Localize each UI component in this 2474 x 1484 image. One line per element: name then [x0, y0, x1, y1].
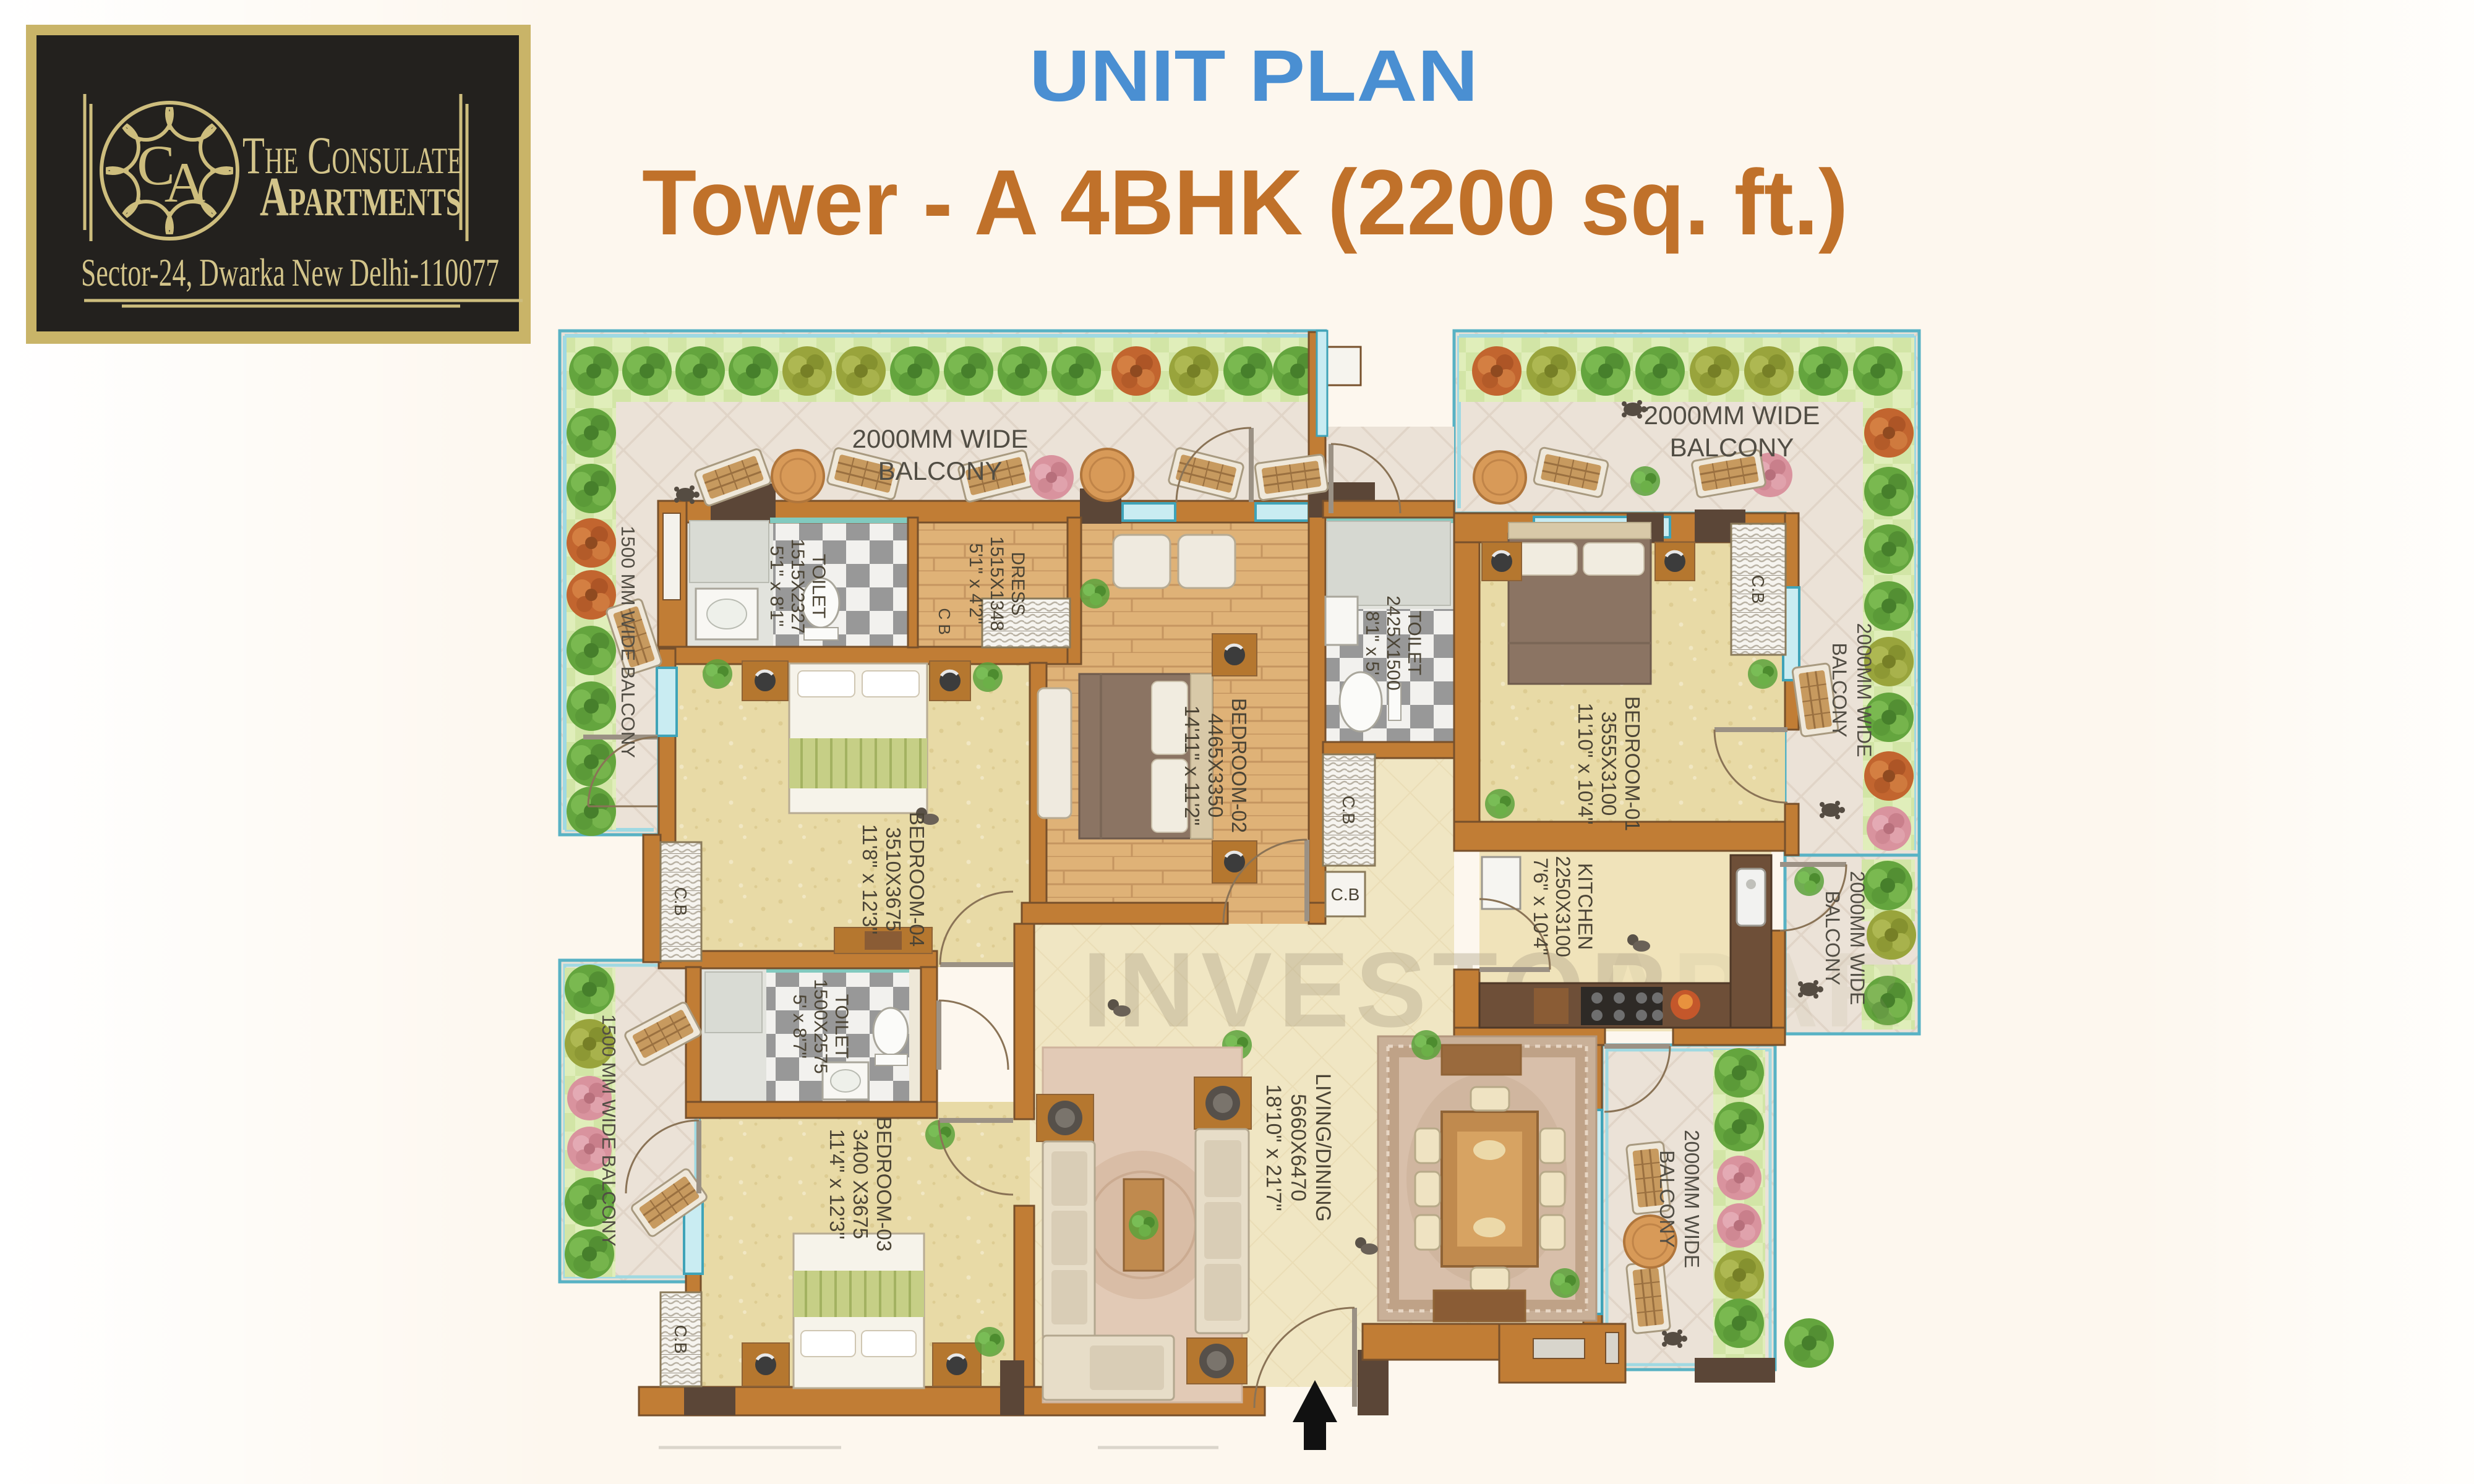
svg-text:C.B: C.B: [671, 1325, 690, 1354]
svg-text:C.B: C.B: [1331, 885, 1360, 904]
svg-text:1500 MM WIDE BALCONY: 1500 MM WIDE BALCONY: [617, 526, 639, 758]
svg-text:A: A: [165, 151, 205, 214]
svg-text:C.B: C.B: [671, 887, 690, 916]
svg-text:Apartments: Apartments: [260, 166, 461, 228]
svg-text:BEDROOM-013555X310011'10" x 10: BEDROOM-013555X310011'10" x 10'4": [1574, 696, 1644, 831]
svg-text:C.B: C.B: [1339, 796, 1358, 825]
svg-text:BEDROOM-033400 X367511'4" x 12: BEDROOM-033400 X367511'4" x 12'3": [826, 1117, 896, 1252]
svg-text:C B: C B: [935, 608, 954, 634]
svg-text:KITCHEN2250X31007'6" x 10'4": KITCHEN2250X31007'6" x 10'4": [1530, 856, 1596, 957]
svg-text:UNIT PLAN: UNIT PLAN: [1029, 35, 1478, 117]
svg-text:2000MM WIDE: 2000MM WIDE: [1644, 401, 1820, 430]
svg-text:Tower - A 4BHK (2200 sq. ft.): Tower - A 4BHK (2200 sq. ft.): [642, 150, 1848, 254]
svg-text:1500 MM WIDE BALCONY: 1500 MM WIDE BALCONY: [598, 1014, 620, 1247]
svg-text:BEDROOM-024465X335014'11" x 11: BEDROOM-024465X335014'11" x 11'2": [1181, 698, 1251, 833]
svg-text:BALCONY: BALCONY: [878, 456, 1003, 485]
svg-text:Sector-24, Dwarka New Delhi-11: Sector-24, Dwarka New Delhi-110077: [81, 250, 499, 294]
svg-text:C.B: C.B: [1748, 575, 1768, 604]
svg-text:2000MM WIDE: 2000MM WIDE: [852, 424, 1029, 453]
svg-text:BEDROOM-043510X367511'8" x 12': BEDROOM-043510X367511'8" x 12'3": [858, 812, 928, 947]
svg-text:BALCONY: BALCONY: [1670, 433, 1794, 462]
svg-text:LIVING/DINING5660X647018'10" x: LIVING/DINING5660X647018'10" x 21'7": [1262, 1073, 1335, 1222]
